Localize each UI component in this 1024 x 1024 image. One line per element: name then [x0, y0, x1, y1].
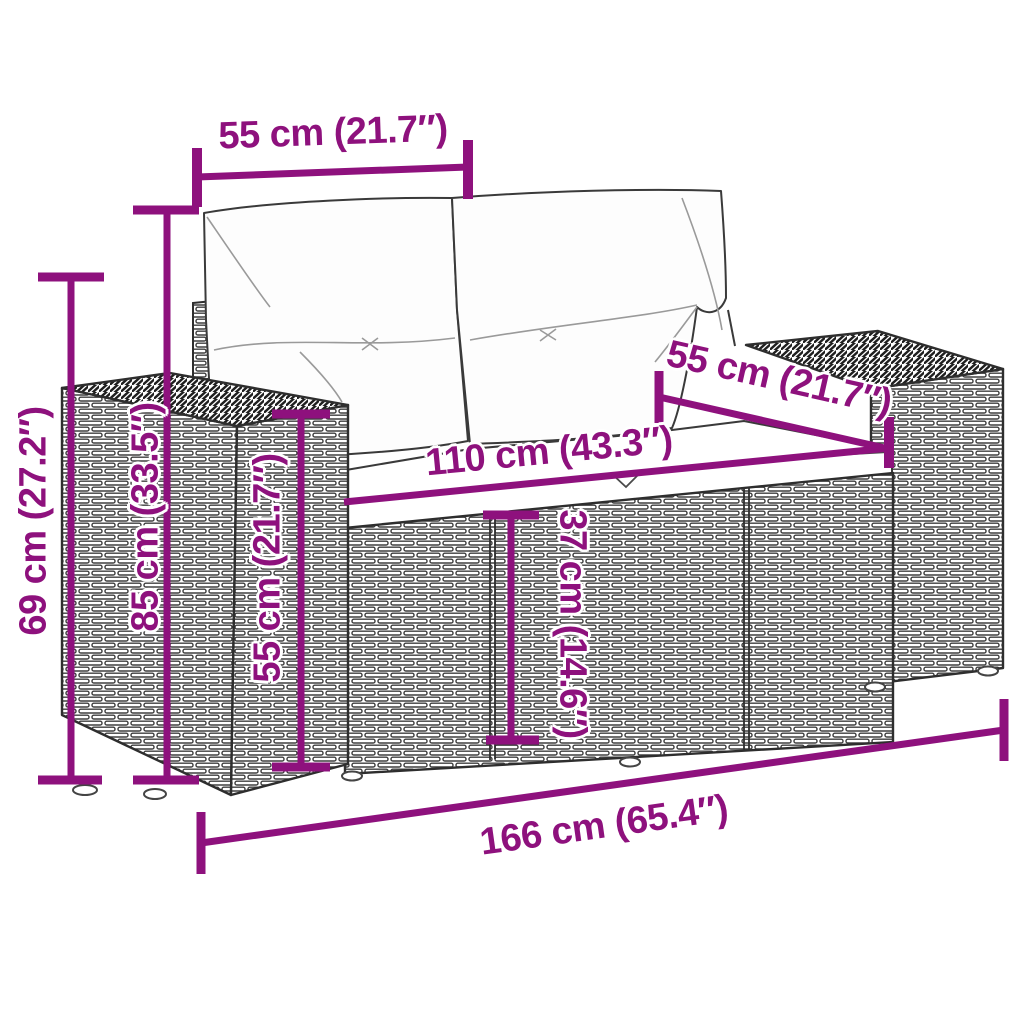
dimension-label-arm-height: 55 cm (21.7″) — [247, 453, 290, 682]
dimension-label-top-width: 55 cm (21.7″) — [218, 108, 449, 159]
dimension-label-overall-height: 69 cm (27.2″) — [13, 406, 56, 635]
dimension-label-seat-height: 37 cm (14.6″) — [551, 509, 594, 738]
left-armrest — [62, 373, 348, 795]
dimension-label-back-height: 85 cm (33.5″) — [125, 402, 168, 631]
dimension-diagram: 55 cm (21.7″) 69 cm (27.2″) 85 cm (33.5″… — [0, 0, 1024, 1024]
